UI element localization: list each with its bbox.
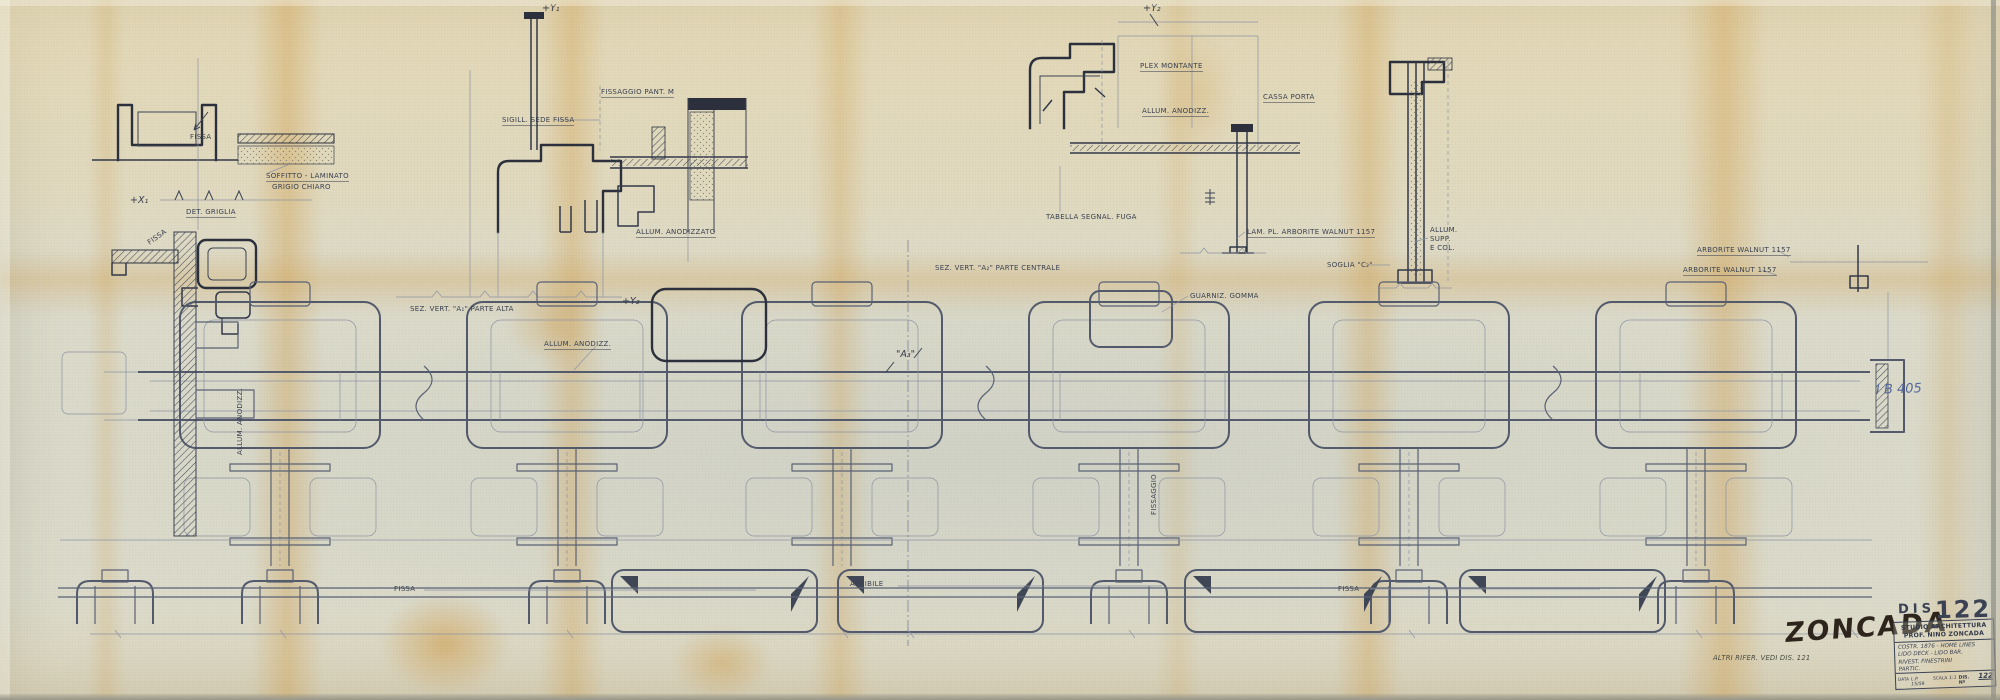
- label-plex-montante: PLEX MONTANTE: [1140, 62, 1203, 72]
- label-sigill-sede-fissa: SIGILL. SEDE FISSA: [502, 116, 574, 126]
- label-fissaggio-rot: FISSAGGIO: [1150, 474, 1158, 515]
- label-fissa-head: FISSA: [190, 133, 211, 141]
- footer-scale-label: SCALA: [1933, 676, 1947, 681]
- dis-stamp-prefix: DIS: [1898, 601, 1935, 617]
- scan-edge-bottom: [0, 694, 2000, 700]
- detail-sez-vert-a1: [396, 12, 748, 297]
- note-altri-rifer: ALTRI RIFER. VEDI DIS. 121: [1713, 655, 1810, 663]
- footer-date-label: DATA: [1898, 677, 1909, 682]
- label-sez-vert-a1: SEZ. VERT. "A₁" PARTE ALTA: [410, 305, 514, 313]
- marker-a3: "A₃": [896, 350, 915, 361]
- label-cassa-porta: CASSA PORTA: [1263, 93, 1315, 103]
- label-fissa-plan-right: FISSA: [1338, 585, 1359, 593]
- label-allum-supp-1: ALLUM.: [1430, 226, 1457, 234]
- label-allum-anodizz-a2: ALLUM. ANODIZZ.: [1142, 107, 1209, 117]
- drawing-linework: [0, 0, 2000, 700]
- footer-scale: 1:1: [1949, 676, 1957, 681]
- label-det-griglia: DET. GRIGLIA: [186, 208, 236, 218]
- label-guarniz-gomma: GUARNIZ. GOMMA: [1190, 292, 1259, 300]
- label-arborite-walnut-2: ARBORITE WALNUT 1157: [1683, 266, 1777, 276]
- label-fissaggio-pant: FISSAGGIO PANT. M: [601, 88, 674, 98]
- scan-edge-right: [1991, 0, 1996, 700]
- label-lam-pl-arborite: LAM. PL. ARBORITE WALNUT 1157: [1247, 228, 1375, 238]
- blueprint-sheet: FISSASOFFITTO - LAMINATOGRIGIO CHIARO+X₁…: [0, 0, 2000, 700]
- label-allum-anodizz-plan: ALLUM. ANODIZZ.: [544, 340, 611, 350]
- label-allum-supp-2: SUPP.: [1430, 235, 1451, 243]
- label-soglia-c2: SOGLIA "C₂": [1327, 261, 1373, 269]
- label-fissa-plan-left: FISSA: [394, 585, 415, 593]
- title-block: STUDIO ARCHITETTURA PROF. NINO ZONCADA C…: [1893, 618, 1996, 689]
- scan-edge-left: [0, 0, 10, 700]
- footer-num-label: DIS. Nº: [1959, 675, 1976, 686]
- footer-date: L.P. 15/59: [1911, 677, 1931, 688]
- label-tabella-segnal: TABELLA SEGNAL. FUGA: [1046, 213, 1137, 221]
- plan-section: [58, 232, 1904, 646]
- label-arborite-walnut-1: ARBORITE WALNUT 1157: [1697, 246, 1791, 256]
- label-allum-anodizz-rot: ALLUM. ANODIZZ.: [236, 388, 244, 455]
- label-apribile: APRIBILE: [850, 580, 884, 588]
- title-block-footer: DATA L.P. 15/59 SCALA 1:1 DIS. Nº 122: [1896, 669, 1995, 688]
- label-allum-anodizzato: ALLUM. ANODIZZATO: [636, 228, 716, 238]
- blue-ink-note: I B 405: [1876, 381, 1922, 398]
- label-soffitto-line2: GRIGIO CHIARO: [272, 183, 331, 191]
- detail-top-left: [92, 58, 334, 334]
- label-allum-supp-3: E COL.: [1430, 244, 1455, 252]
- scan-edge-top: [0, 0, 2000, 6]
- label-sez-vert-a2: SEZ. VERT. "A₂" PARTE CENTRALE: [935, 264, 1060, 272]
- marker-x1: +X₁: [130, 196, 148, 207]
- detail-soglia-c2: [1368, 58, 1452, 288]
- marker-y2: +Y₂: [622, 297, 640, 308]
- label-soffitto-line1: SOFFITTO - LAMINATO: [266, 172, 349, 182]
